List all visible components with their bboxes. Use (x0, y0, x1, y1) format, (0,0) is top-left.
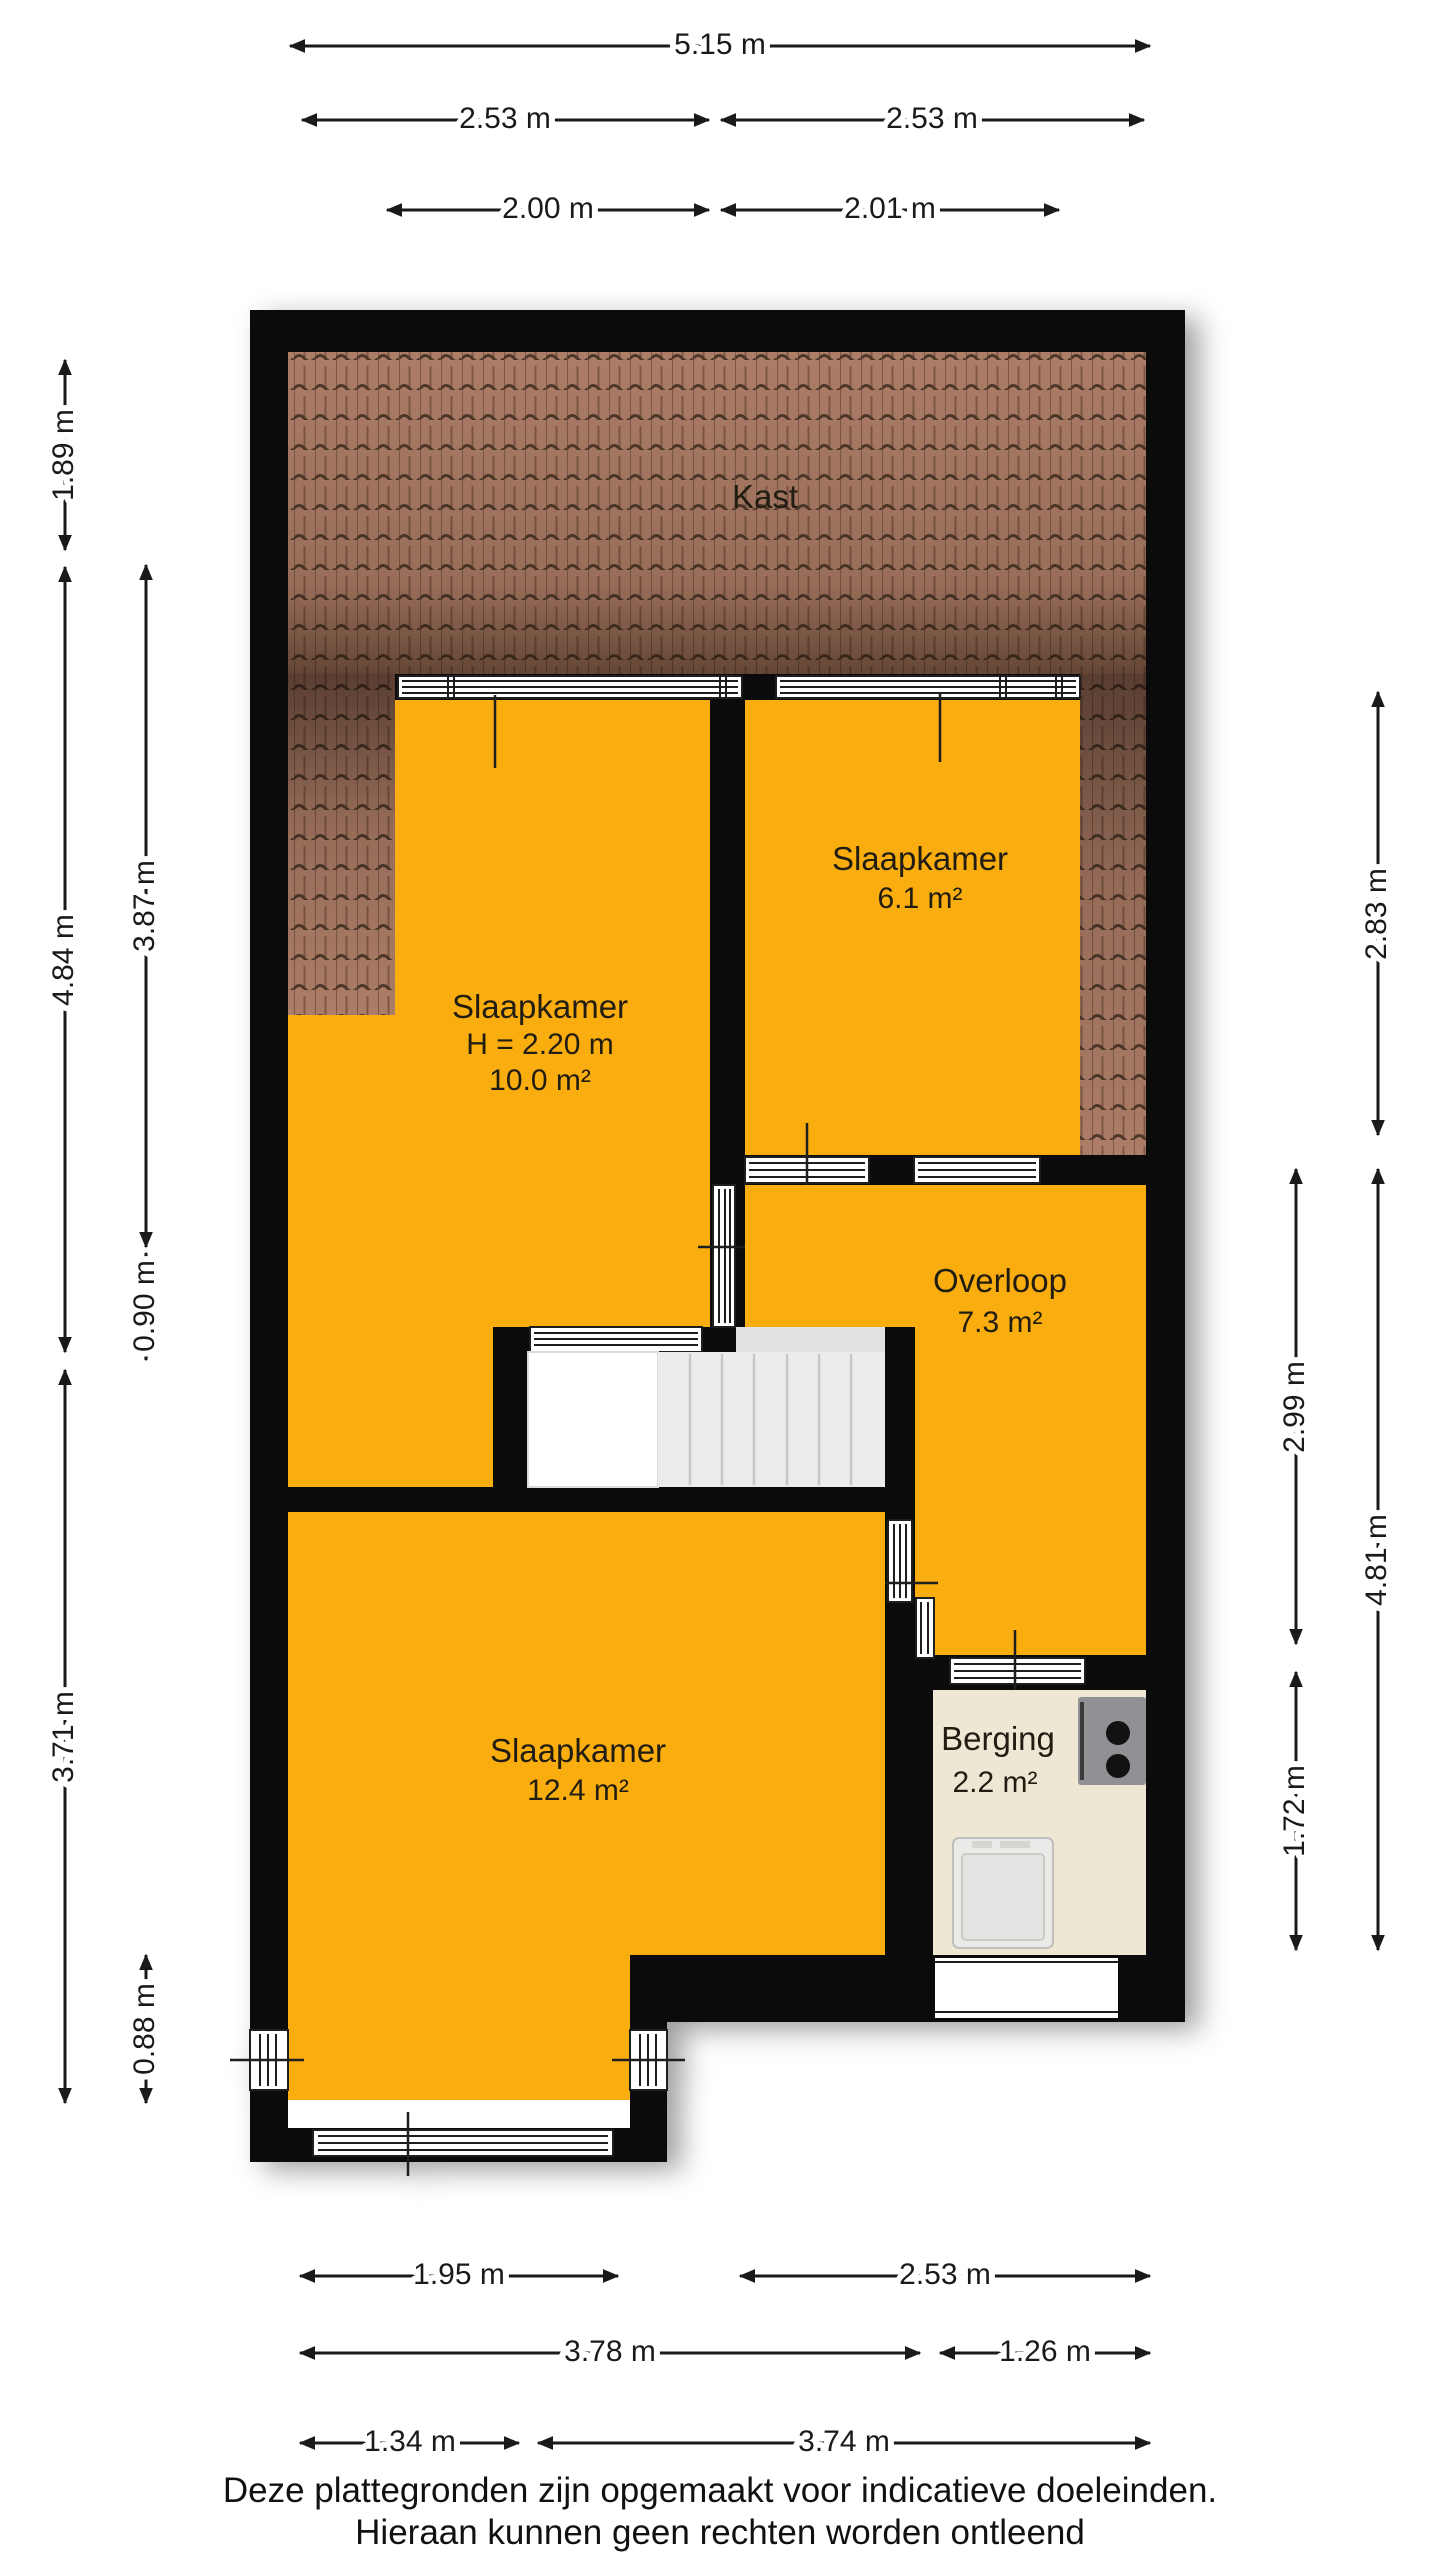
dormer-window-right (776, 676, 1080, 698)
disclaimer-line-2: Hieraan kunnen geen rechten worden ontle… (355, 2513, 1085, 2552)
room-slaapkamer-groot-label: Slaapkamer (490, 1732, 666, 1769)
floorplan-canvas: Kast Slaapkamer H = 2.2 (0, 0, 1440, 2560)
dimension: 5.15 m (290, 28, 1150, 61)
dim-label: 0.90 m (128, 1260, 161, 1352)
room-overloop-label: Overloop (933, 1262, 1067, 1299)
room-slaapkamer-links-area: 10.0 m² (489, 1064, 591, 1097)
dim-label: 4.81 m (1360, 1514, 1393, 1606)
room-kast: Kast (288, 352, 1146, 674)
dimension: 1.34 m (300, 2425, 519, 2458)
roof-strip-right (1080, 674, 1146, 1155)
dim-label: 3.74 m (798, 2425, 890, 2458)
disclaimer: Deze plattegronden zijn opgemaakt voor i… (223, 2471, 1217, 2552)
room-kast-label: Kast (732, 478, 798, 515)
room-berging-area: 2.2 m² (952, 1766, 1037, 1799)
dim-label: 5.15 m (674, 28, 766, 61)
dim-label: 2.53 m (886, 102, 978, 135)
dimension: 1.95 m (300, 2258, 618, 2291)
dimension: 4.84 m (47, 567, 80, 1352)
dim-label: 2.00 m (502, 192, 594, 225)
room-slaapkamer-rechts-label: Slaapkamer (832, 840, 1008, 877)
dimensions-bottom: 1.95 m 2.53 m 3.78 m 1.26 m 1.34 m 3.74 … (300, 2258, 1150, 2458)
dimensions-top: 5.15 m 2.53 m 2.53 m 2.00 m 2.01 m (290, 28, 1150, 225)
dim-label: 4.84 m (47, 914, 80, 1006)
dimensions-left: 1.89 m 4.84 m 3.71 m 3.87 m 0.90 m 0.88 … (47, 360, 161, 2103)
dimension: 4.81 m (1360, 1169, 1393, 1950)
dim-label: 2.01 m (844, 192, 936, 225)
dimension: 2.99 m (1278, 1169, 1311, 1644)
dimension: 1.26 m (940, 2335, 1150, 2368)
bottom-door-opening (935, 1958, 1118, 2018)
dimension: 1.72 m (1278, 1672, 1311, 1950)
room-slaapkamer-groot-area: 12.4 m² (527, 1774, 629, 1807)
room-slaapkamer-rechts: Slaapkamer 6.1 m² (745, 692, 1080, 1155)
dim-label: 2.83 m (1360, 868, 1393, 960)
washing-machine-icon (953, 1838, 1053, 1948)
dimension: 3.71 m (47, 1370, 80, 2103)
roof-strip-left (288, 674, 395, 1015)
dim-label: 1.72 m (1278, 1765, 1311, 1857)
room-slaapkamer-links-height: H = 2.20 m (466, 1028, 614, 1061)
dim-label: 1.26 m (999, 2335, 1091, 2368)
dimension: 3.74 m (538, 2425, 1150, 2458)
room-overloop-area: 7.3 m² (957, 1306, 1042, 1339)
dim-label: 1.95 m (413, 2258, 505, 2291)
room-berging-label: Berging (941, 1720, 1055, 1757)
dimension: 0.88 m (128, 1955, 161, 2103)
disclaimer-line-1: Deze plattegronden zijn opgemaakt voor i… (223, 2471, 1217, 2510)
room-slaapkamer-links-label: Slaapkamer (452, 988, 628, 1025)
dim-label: 3.78 m (564, 2335, 656, 2368)
stairwell-void (528, 1352, 658, 1487)
dimension: 0.90 m (128, 1253, 161, 1360)
dim-label: 3.71 m (47, 1691, 80, 1783)
dim-label: 1.89 m (47, 409, 80, 501)
dimension: 3.78 m (300, 2335, 920, 2368)
dim-label: 3.87 m (128, 860, 161, 952)
dim-label: 1.34 m (364, 2425, 456, 2458)
floor-plan: Kast Slaapkamer H = 2.2 (230, 310, 1185, 2176)
dimension: 2.53 m (740, 2258, 1150, 2291)
dimension: 2.53 m (721, 102, 1144, 135)
dimension: 2.83 m (1360, 692, 1393, 1135)
dim-label: 2.99 m (1278, 1361, 1311, 1453)
dim-label: 2.53 m (899, 2258, 991, 2291)
dimensions-right: 2.83 m 4.81 m 2.99 m 1.72 m (1278, 692, 1393, 1950)
dimension: 2.53 m (302, 102, 709, 135)
dimension: 2.01 m (721, 192, 1059, 225)
dormer-window-left (398, 676, 742, 698)
room-slaapkamer-rechts-area: 6.1 m² (877, 882, 962, 915)
boiler-icon (1078, 1697, 1146, 1785)
dim-label: 2.53 m (459, 102, 551, 135)
dimension: 1.89 m (47, 360, 80, 550)
dimension: 2.00 m (387, 192, 709, 225)
dimension: 3.87 m (128, 565, 161, 1247)
dim-label: 0.88 m (128, 1983, 161, 2075)
